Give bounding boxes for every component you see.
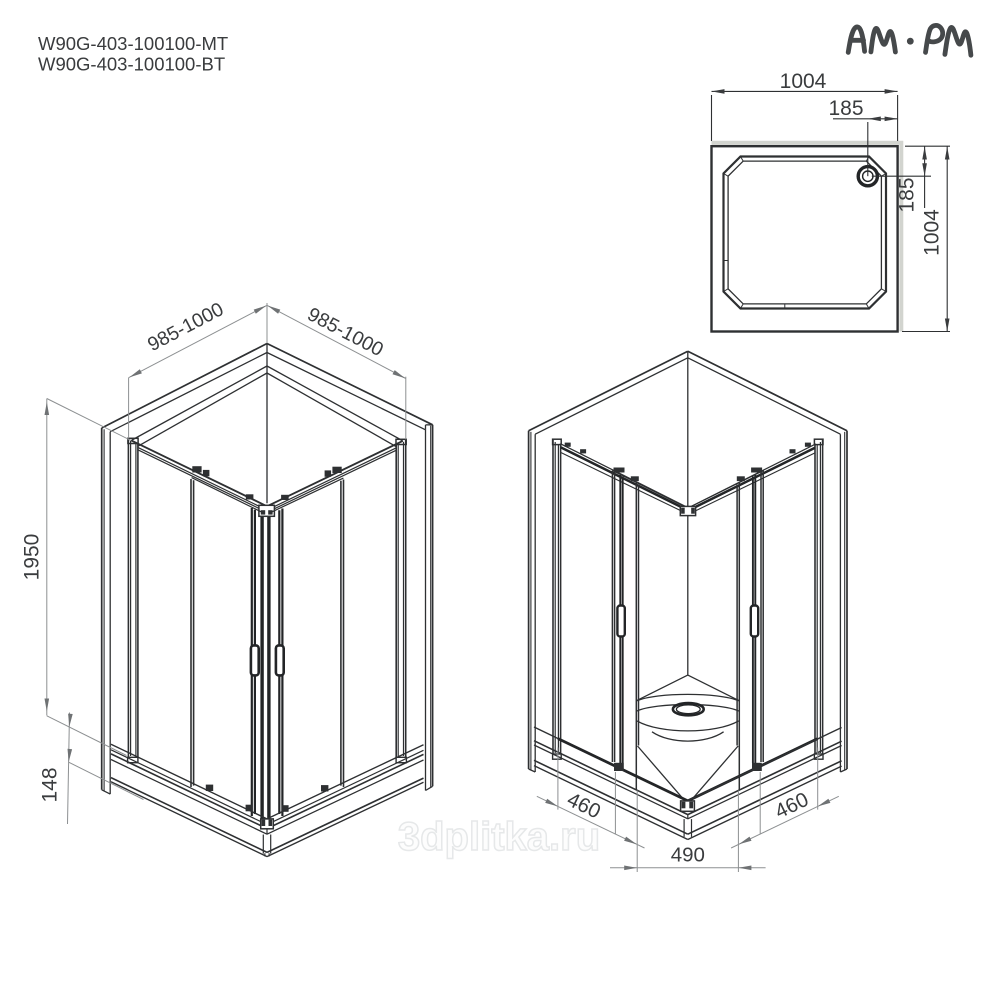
svg-text:1950: 1950 (21, 534, 44, 581)
svg-text:490: 490 (671, 844, 705, 867)
svg-text:1004: 1004 (921, 209, 944, 256)
svg-text:W90G-403-100100-BT: W90G-403-100100-BT (38, 54, 225, 75)
svg-text:185: 185 (828, 97, 863, 120)
svg-text:1004: 1004 (780, 70, 827, 93)
svg-text:148: 148 (39, 767, 62, 802)
svg-text:3dplitka.ru: 3dplitka.ru (398, 815, 600, 859)
svg-text:185: 185 (896, 177, 919, 212)
svg-text:W90G-403-100100-MT: W90G-403-100100-MT (38, 33, 228, 54)
